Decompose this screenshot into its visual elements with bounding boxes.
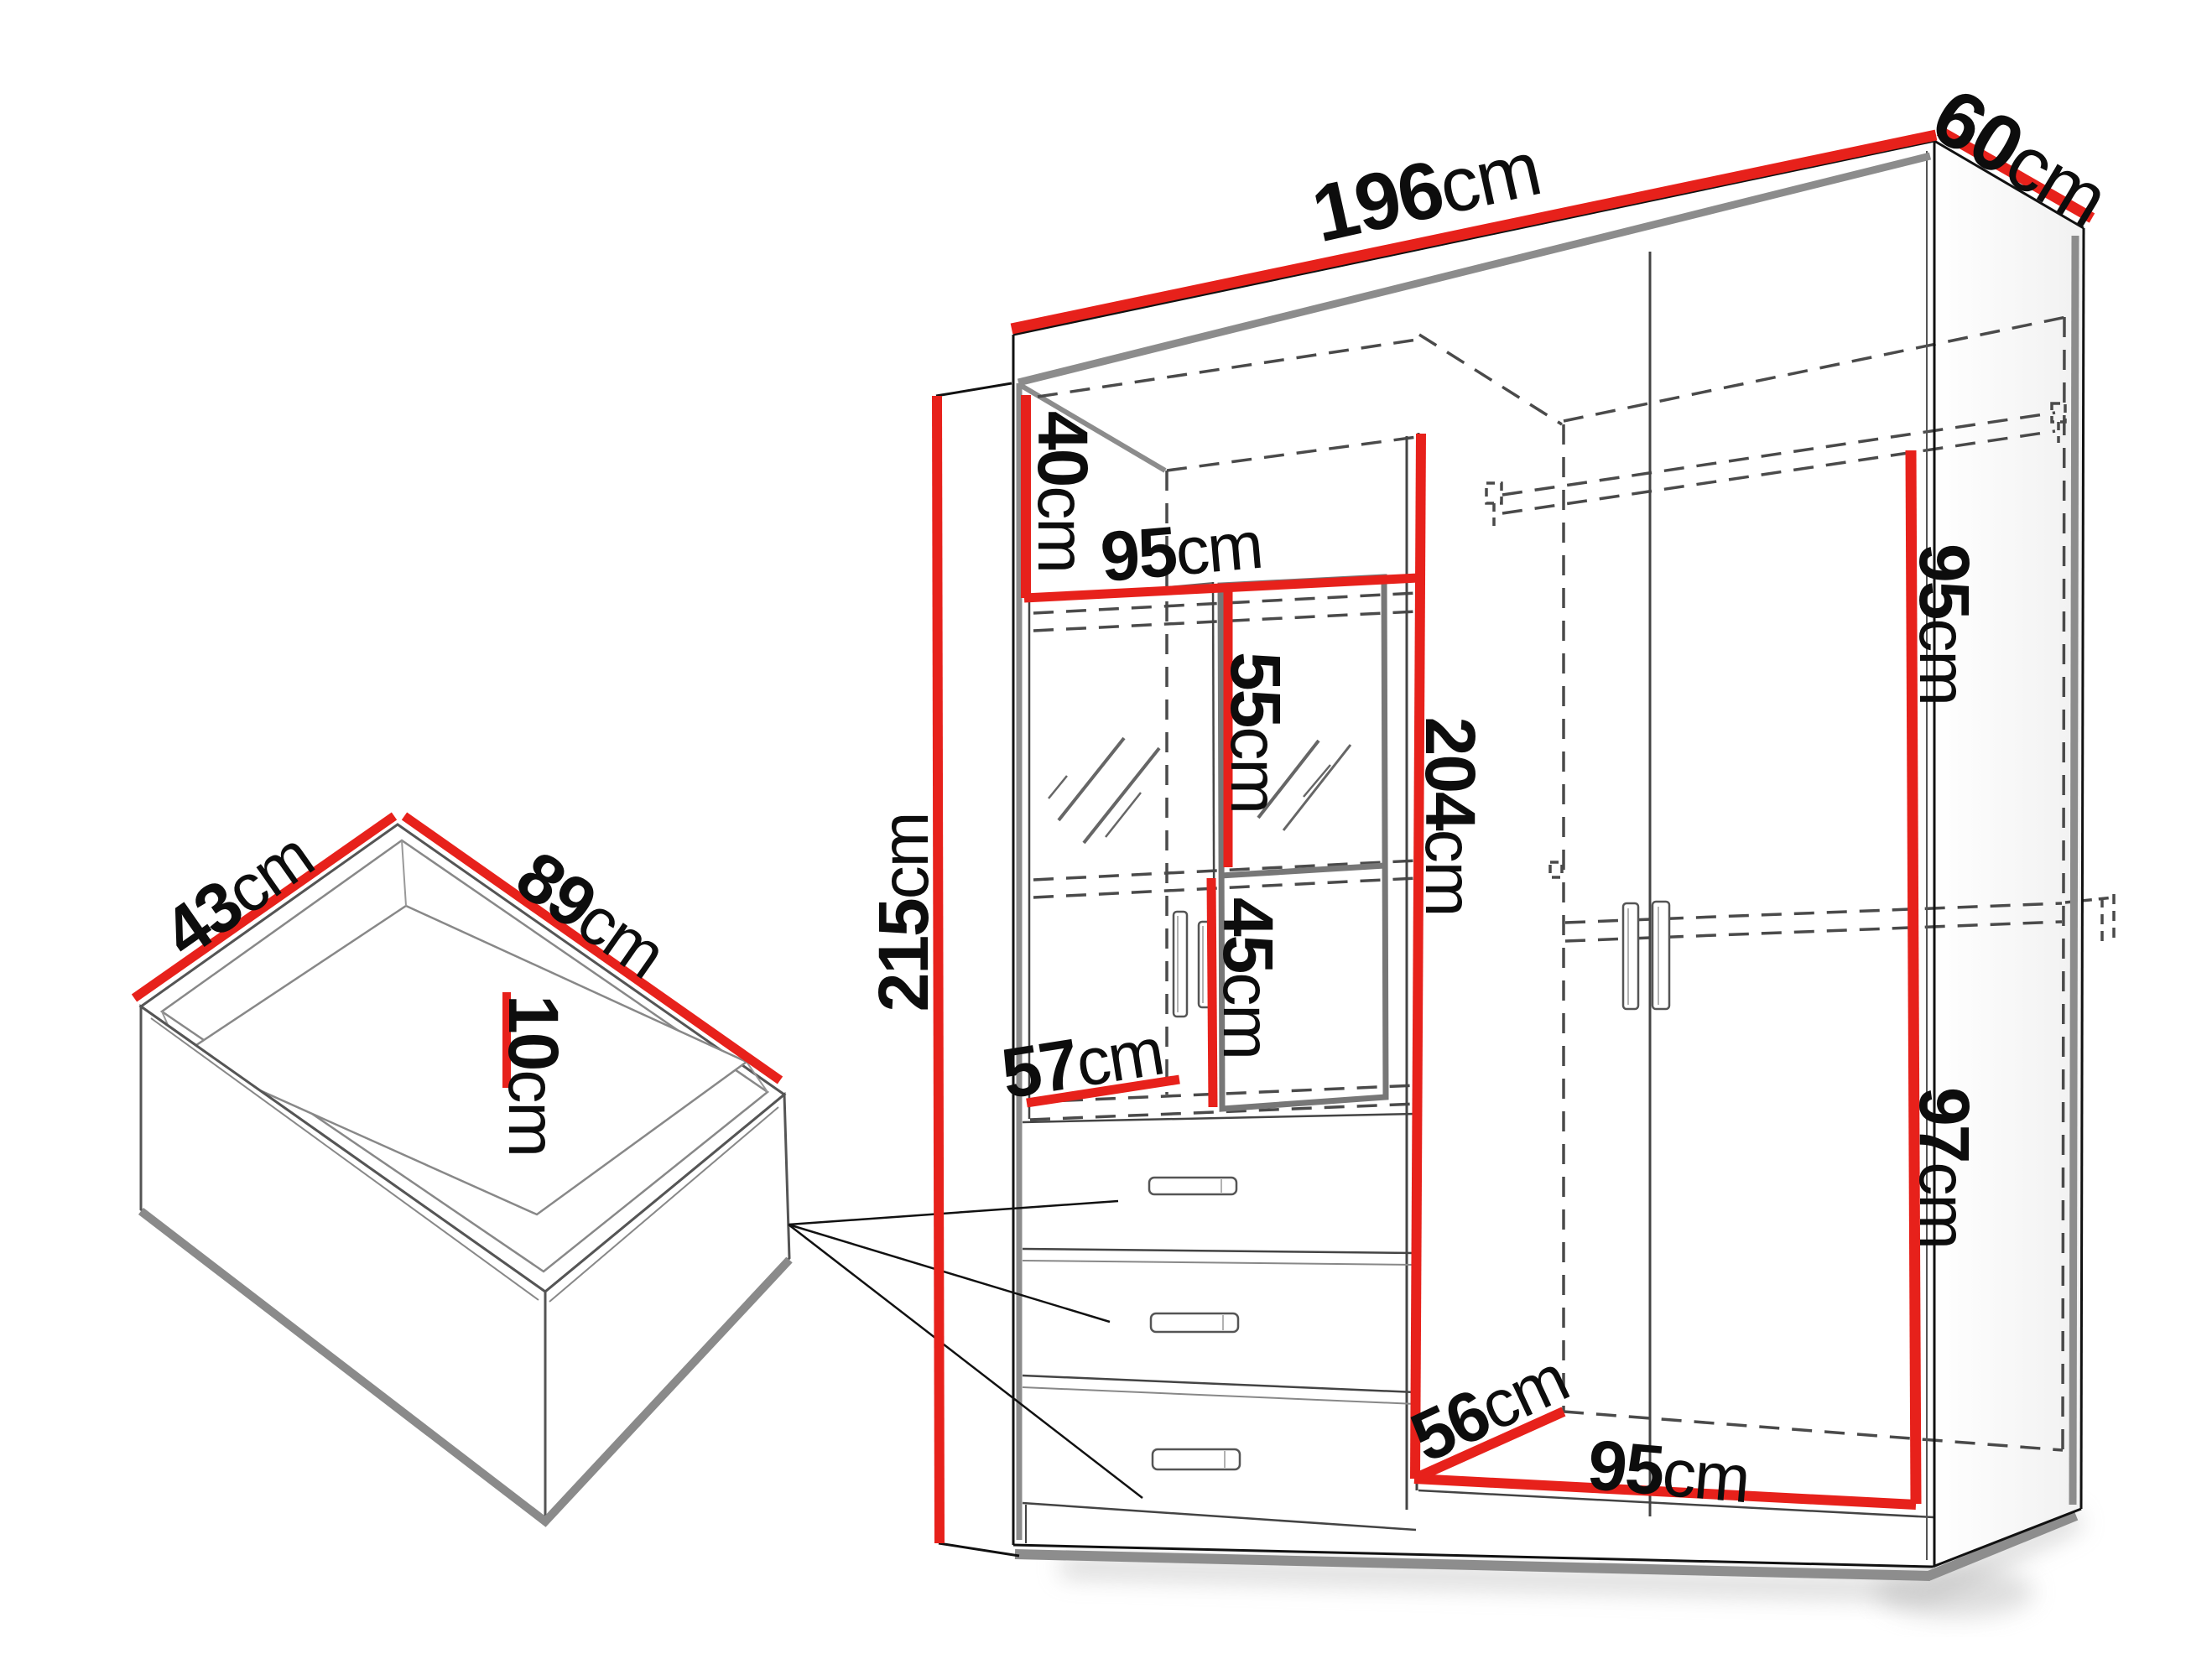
height-extension-leader [936, 383, 1012, 396]
height-extension-leader [939, 1543, 1019, 1556]
dim-label-bottom-section-width: 95cm [1585, 1429, 1752, 1513]
mirror-door-handle-icon [1174, 912, 1187, 1017]
drawer-handle-icon [1153, 1449, 1240, 1469]
dim-label-drawer-height: 10cm [498, 995, 569, 1156]
dim-label-right-upper: 95cm [1909, 543, 1980, 705]
dim-line-204 [1415, 434, 1421, 1479]
dim-label-right-lower: 97cm [1909, 1087, 1980, 1248]
diagram-canvas: 196cm 60cm 215cm 40cm 95cm 55cm 204cm 95… [0, 0, 2212, 1659]
dim-label-height: 215cm [868, 814, 939, 1012]
drawer-handle-icon [1149, 1178, 1236, 1194]
dim-label-left-section-width: 95cm [1098, 508, 1265, 592]
right-back-right-edge [2063, 317, 2064, 1450]
drawer-handle-icon [1151, 1313, 1238, 1332]
right-door-handle-icon [1652, 902, 1669, 1009]
dim-label-interior-height: 204cm [1415, 717, 1486, 916]
dim-label-upper-glass: 55cm [1221, 652, 1291, 813]
right-side-panel [1933, 141, 2084, 1567]
wardrobe-diagram [0, 0, 2212, 1659]
dim-label-top-compartment: 40cm [1028, 411, 1098, 572]
right-door-handle-icon [1623, 903, 1638, 1009]
dim-label-lower-glass: 45cm [1213, 897, 1283, 1058]
